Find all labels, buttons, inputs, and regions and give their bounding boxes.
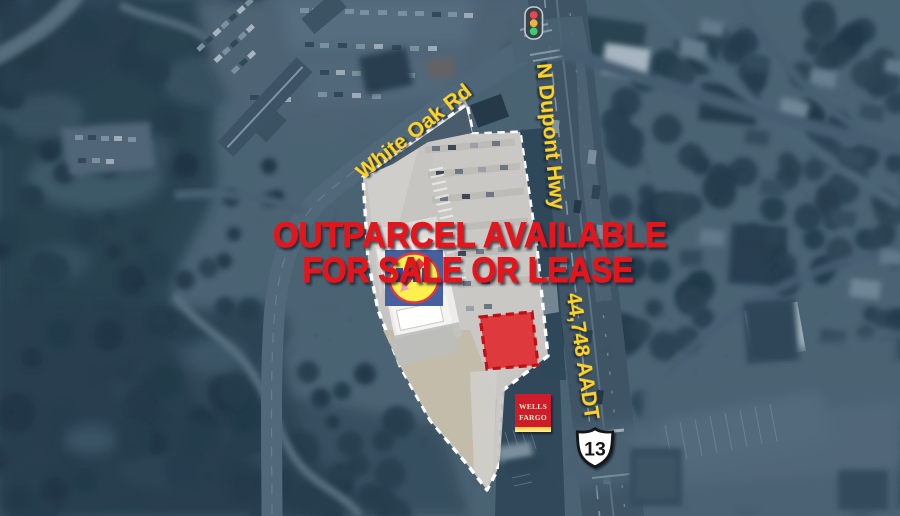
svg-text:FARGO: FARGO bbox=[519, 413, 547, 422]
svg-text:FOR SALE OR LEASE: FOR SALE OR LEASE bbox=[303, 250, 634, 290]
svg-text:WELLS: WELLS bbox=[519, 402, 547, 411]
svg-text:OUTPARCEL AVAILABLE: OUTPARCEL AVAILABLE bbox=[273, 215, 667, 255]
svg-text:13: 13 bbox=[584, 439, 606, 461]
